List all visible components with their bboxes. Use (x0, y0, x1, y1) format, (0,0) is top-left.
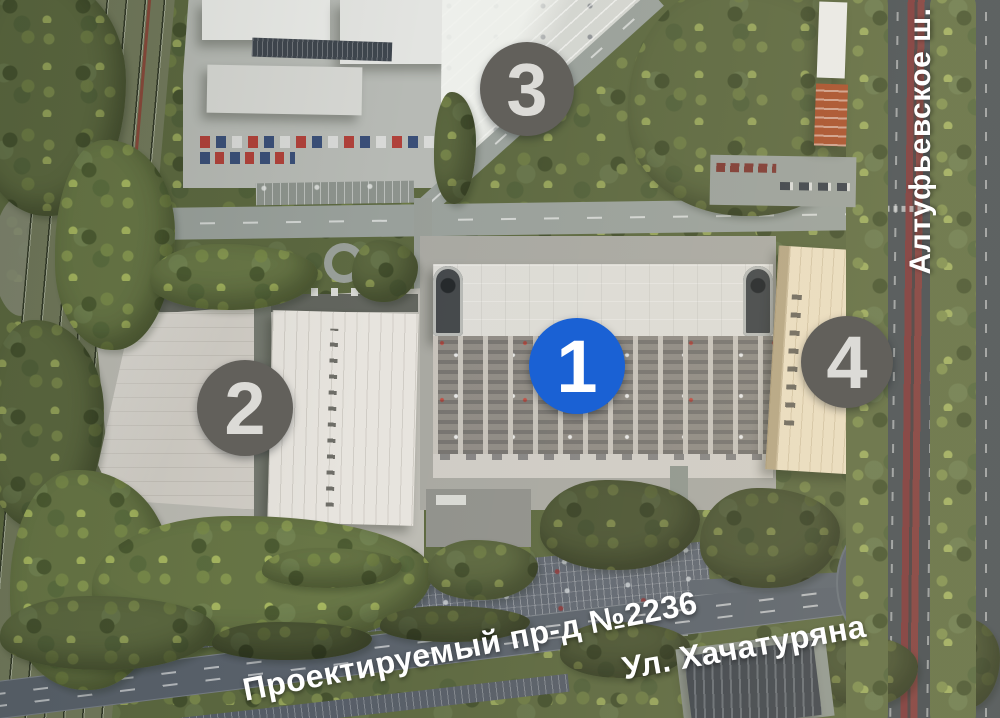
map-marker-2[interactable]: 2 (197, 360, 293, 456)
map-marker-4[interactable]: 4 (801, 316, 893, 408)
map-marker-3[interactable]: 3 (480, 42, 574, 136)
map-marker-1[interactable]: 1 (529, 318, 625, 414)
street-label-altufyevskoye: Алтуфьевское ш. (906, 11, 936, 271)
aerial-map: Алтуфьевское ш. Проектируемый пр-д №2236… (0, 0, 1000, 718)
